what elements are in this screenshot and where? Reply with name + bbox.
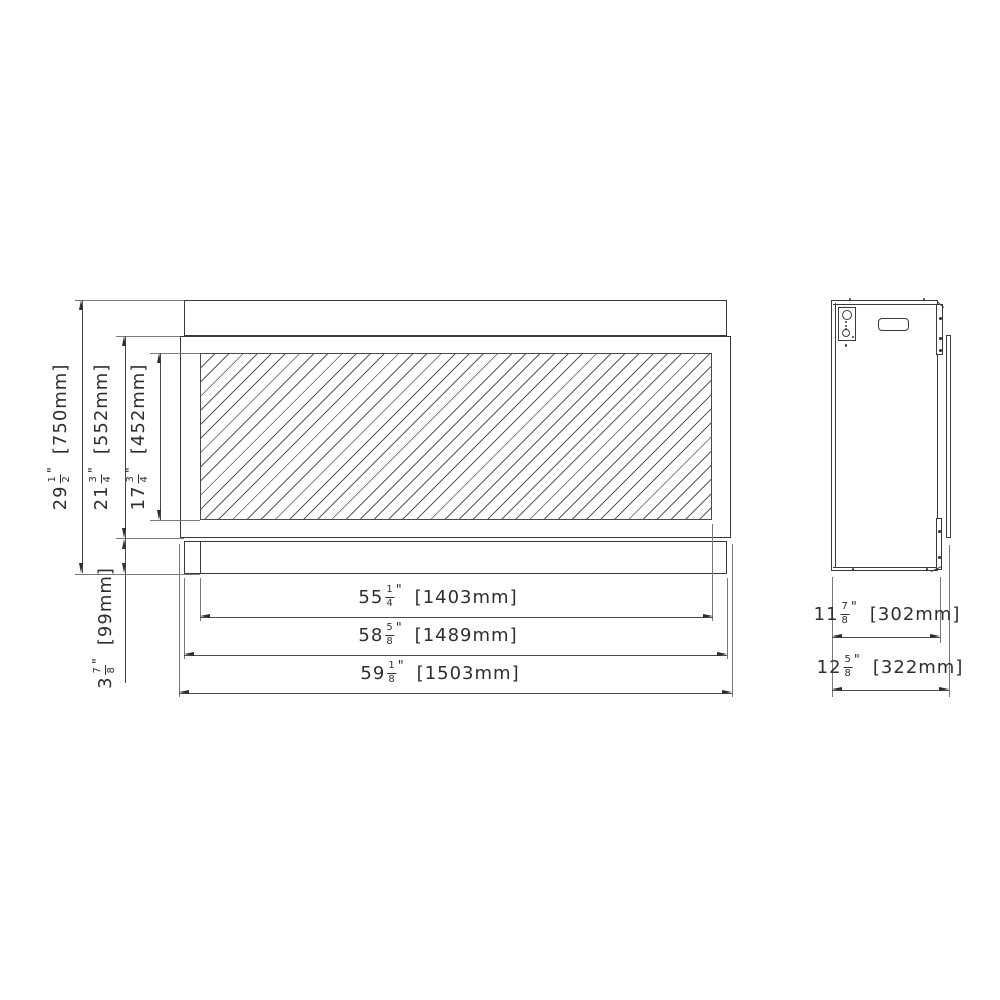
ext-line: [184, 578, 185, 659]
ext-line: [75, 300, 184, 301]
dim-label-opening-width: 55 14 " [1403mm]: [358, 586, 517, 610]
dim-arrow: [79, 563, 83, 573]
dim-arrow: [832, 634, 842, 638]
dim-arrow: [122, 539, 126, 549]
indicator-dot: [845, 328, 847, 330]
dim-arrow: [179, 690, 189, 694]
dim-arrow: [122, 336, 126, 346]
dim-arrow: [703, 614, 713, 618]
dim-arrow: [939, 687, 949, 691]
dim-arrow: [717, 652, 727, 656]
vent-slot: [878, 318, 909, 331]
ext-line: [179, 544, 180, 697]
dim-line-body-depth: [832, 637, 940, 638]
dim-line-overall-height: [82, 300, 83, 573]
screw-dot: [939, 349, 942, 352]
ext-line: [732, 544, 733, 697]
rear-flange-top: [936, 304, 943, 355]
screw-dot: [938, 530, 941, 533]
side-body-inner-left-edge: [835, 303, 836, 568]
dim-line-glass-height: [160, 353, 161, 520]
control-knob-top: [842, 310, 852, 320]
glass-panel-edge: [946, 335, 951, 538]
technical-drawing: 29 12 " [750mm] 21 34 " [552mm] 17 34 " …: [0, 0, 1000, 1000]
ext-line: [727, 578, 728, 659]
screw-dot: [923, 298, 926, 301]
dim-line-frame-height: [125, 336, 126, 538]
dim-arrow: [184, 652, 194, 656]
dim-arrow: [79, 300, 83, 310]
ext-line: [712, 524, 713, 621]
indicator-dot: [845, 325, 847, 327]
side-body-inner-bottom-edge: [833, 567, 936, 568]
screw-dot: [926, 568, 929, 571]
bottom-base: [184, 541, 727, 574]
screw-dot: [938, 556, 941, 559]
dim-arrow: [722, 690, 732, 694]
dim-arrow: [930, 634, 940, 638]
dim-arrow: [157, 510, 161, 520]
dim-arrow: [122, 563, 126, 573]
screw-dot: [849, 298, 852, 301]
dim-label-glass-height: 17 34 " [452mm]: [127, 364, 151, 511]
dim-arrow: [832, 687, 842, 691]
dim-label-frame-height: 21 34 " [552mm]: [90, 364, 114, 511]
indicator-dot: [852, 336, 854, 338]
top-trim: [184, 300, 727, 336]
base-inner-edge-left: [200, 541, 201, 574]
dim-label-body-width: 58 58 " [1489mm]: [358, 624, 517, 648]
side-body-inner-top-edge: [833, 304, 936, 305]
indicator-dot: [845, 321, 847, 323]
dim-line-body-width: [184, 655, 727, 656]
glass-hatch: [200, 353, 712, 520]
dim-line-opening-width: [200, 617, 713, 618]
control-knob-bottom: [842, 329, 850, 337]
screw-dot: [852, 568, 855, 571]
screw-dot: [939, 337, 942, 340]
dim-line-overall-depth: [832, 690, 949, 691]
dim-label-overall-width: 59 18 " [1503mm]: [360, 662, 519, 686]
dim-label-overall-depth: 12 58 " [322mm]: [817, 656, 964, 680]
dim-line-base-height: [125, 538, 126, 683]
dim-line-overall-width: [179, 693, 732, 694]
dim-label-base-height: 3 78 " [99mm]: [94, 567, 118, 689]
dim-arrow: [157, 353, 161, 363]
dim-arrow: [122, 528, 126, 538]
rear-flange-bottom: [936, 518, 942, 570]
screw-dot: [939, 317, 942, 320]
dim-arrow: [200, 614, 210, 618]
screw-dot: [845, 344, 848, 347]
dim-label-body-depth: 11 78 " [302mm]: [814, 603, 961, 627]
dim-label-overall-height: 29 12 " [750mm]: [49, 364, 73, 511]
